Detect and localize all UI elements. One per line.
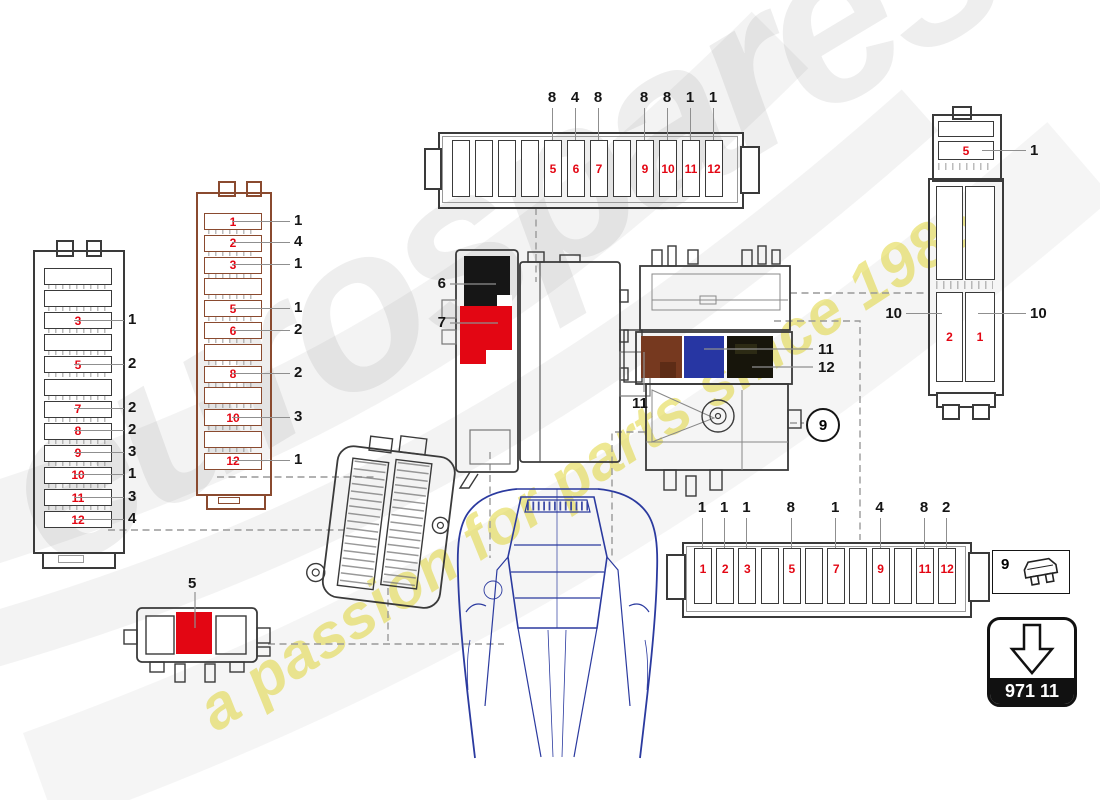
fuse-relay-parts-diagram: eurospares a passion for parts since 198… (0, 0, 1100, 800)
callout-label: 1 (294, 213, 320, 228)
circle-callout: 9 (806, 408, 840, 442)
leader-line (232, 308, 290, 309)
callout-label: 2 (128, 356, 154, 371)
callout-label: 1 (128, 312, 154, 327)
fuse-number: 6 (573, 163, 580, 175)
callout-label: 1 (713, 500, 735, 515)
end-cap (424, 148, 442, 190)
fuse-slot-7: 7 (590, 140, 608, 197)
fuse-slot-12: 12 (705, 140, 723, 197)
callout-label: 8 (633, 90, 655, 105)
fuse-slot-6 (44, 379, 112, 396)
fuse-slot-2: 2 (716, 548, 734, 604)
fuse-slot-3: 3 (44, 312, 112, 329)
leader-line (835, 518, 836, 548)
leader-line (978, 313, 1026, 314)
relay-blue (684, 336, 724, 378)
fuse-box-brown: 112431516282103121 (190, 178, 325, 513)
callout-label: 4 (294, 234, 320, 249)
leader-line (74, 320, 124, 321)
part-number-box[interactable]: 971 11 (987, 617, 1077, 707)
callout-label: 10 (1030, 306, 1047, 321)
fuse-slot-2: 2 (204, 235, 262, 252)
fuse-strip-bottom: 112131587194118122 (664, 496, 994, 626)
fuse-slot-5: 5 (783, 548, 801, 604)
fuse-slot-12: 12 (204, 453, 262, 470)
fuse-slot-3: 3 (204, 257, 262, 274)
fuse-slot: 1 (965, 292, 995, 382)
fuse-slot (936, 186, 963, 280)
fuse-slot-1 (452, 140, 470, 197)
comb-detail (208, 383, 256, 387)
fuse-number: 12 (71, 514, 84, 526)
callout-label: 1 (294, 256, 320, 271)
callout-label: 8 (656, 90, 678, 105)
callout-label: 2 (128, 400, 154, 415)
fuse-number: 7 (833, 563, 840, 575)
fuse-number: 1 (230, 216, 237, 228)
fuse-number: 9 (877, 563, 884, 575)
comb-detail (48, 506, 106, 510)
fuse-number: 5 (963, 145, 970, 157)
base-detail (58, 555, 84, 563)
comb-detail (208, 404, 256, 408)
fuse-slot (965, 186, 995, 280)
leader-line (924, 518, 925, 548)
leader-line (713, 108, 714, 140)
comb-detail (48, 484, 106, 488)
callout-label: 1 (824, 500, 846, 515)
small-relay-box (124, 592, 270, 682)
fuse-slot-9: 9 (872, 548, 890, 604)
fuse-slot-6: 6 (567, 140, 585, 197)
fuse-slot-2 (44, 290, 112, 307)
leader-line (982, 150, 1026, 151)
leader-line (644, 108, 645, 140)
end-cap (666, 554, 686, 600)
leader-line (74, 474, 124, 475)
fuse-slot-7: 7 (44, 401, 112, 418)
fuse-slot-11: 11 (682, 140, 700, 197)
fuse-slot-1 (44, 268, 112, 285)
callout-label: 2 (935, 500, 957, 515)
comb-detail (208, 230, 256, 234)
fuse-slot-10 (894, 548, 912, 604)
comb-detail (208, 339, 256, 343)
fuse-number: 7 (75, 403, 82, 415)
comb-detail (48, 351, 106, 355)
leader-line (74, 364, 124, 365)
fuse-slot-2 (475, 140, 493, 197)
leader-line (702, 518, 703, 548)
foot (972, 404, 990, 420)
leader-line (74, 497, 124, 498)
leader-line (232, 460, 290, 461)
fuse-box-left: 3152728293101113124 (28, 238, 158, 573)
fuse-number: 12 (226, 455, 239, 467)
comb-detail (48, 396, 106, 400)
leader-line (880, 518, 881, 548)
comb-detail (208, 361, 256, 365)
fuse-slot-8: 8 (204, 366, 262, 383)
callout-assembly-dark: 12 (818, 360, 835, 375)
leader-line (690, 108, 691, 140)
leader-line (906, 313, 942, 314)
fuse-number: 3 (230, 259, 237, 271)
fuse-number: 12 (707, 163, 720, 175)
control-module (304, 427, 458, 610)
callout-label: 2 (294, 365, 320, 380)
callout-label: 10 (878, 306, 902, 321)
callout-label: 8 (541, 90, 563, 105)
callout-label: 4 (128, 511, 154, 526)
comb-detail (938, 163, 992, 170)
leader-line (667, 108, 668, 140)
leader-line (232, 330, 290, 331)
leader-line (946, 518, 947, 548)
callout-label: 1 (294, 452, 320, 467)
end-cap (968, 552, 990, 602)
callout-label: 8 (587, 90, 609, 105)
carrier-relays (460, 256, 512, 364)
comb-detail (208, 295, 256, 299)
car-outline (458, 489, 657, 758)
fuse-slot-9: 9 (636, 140, 654, 197)
fuse-slot-10: 10 (204, 409, 262, 426)
fuse-slot-1: 1 (204, 213, 262, 230)
base-detail (218, 497, 240, 504)
fuse-slot-8 (849, 548, 867, 604)
fuse-number: 2 (722, 563, 729, 575)
leader-line (232, 373, 290, 374)
fuse-slot-1: 1 (694, 548, 712, 604)
leader-line (232, 221, 290, 222)
comb-detail (48, 440, 106, 444)
fuse-number: 5 (788, 563, 795, 575)
leader-line (724, 518, 725, 548)
fuse-number: 1 (700, 563, 707, 575)
comb-detail (208, 317, 256, 321)
callout-label: 3 (128, 444, 154, 459)
fuse-slot-7: 7 (827, 548, 845, 604)
leader-line (552, 108, 553, 140)
circle-callout-number: 9 (819, 417, 827, 434)
comb-detail (48, 462, 106, 466)
fuse-number: 11 (685, 163, 698, 175)
down-arrow-icon (1002, 623, 1062, 675)
fuse-number: 8 (75, 425, 82, 437)
fuse-slot-6 (805, 548, 823, 604)
fuse-number: 11 (72, 492, 85, 504)
fuse-number: 3 (75, 315, 82, 327)
callout-carrier-black: 6 (424, 276, 446, 291)
fuse-slot-4 (761, 548, 779, 604)
comb-detail (208, 426, 256, 430)
fuse-number: 3 (744, 563, 751, 575)
callout-small-relay: 5 (188, 576, 196, 591)
comb-detail (48, 307, 106, 311)
fuse-number: 5 (550, 163, 557, 175)
comb-detail (48, 418, 106, 422)
fuse-number: 12 (941, 563, 954, 575)
callout-assembly-brown: 11 (632, 396, 648, 411)
fuse-slot-5: 5 (204, 300, 262, 317)
callout-label: 1 (735, 500, 757, 515)
fuse-slot-4 (521, 140, 539, 197)
fuse-number: 1 (977, 331, 984, 343)
leader-line (232, 242, 290, 243)
fuse-slot: 2 (936, 292, 963, 382)
relay-dark (727, 336, 773, 378)
fuse-number: 5 (230, 303, 237, 315)
fuse-slot-10: 10 (44, 467, 112, 484)
leader-line (232, 417, 290, 418)
leader-line (791, 518, 792, 548)
fuse-slot-5: 5 (544, 140, 562, 197)
fuse-slot-11: 11 (44, 489, 112, 506)
fuse-strip-top: 58647898108111121 (420, 86, 770, 216)
callout-label: 1 (1030, 143, 1038, 158)
callout-label: 4 (869, 500, 891, 515)
callout-label: 1 (702, 90, 724, 105)
callout-label: 1 (679, 90, 701, 105)
fuse-number: 10 (71, 469, 84, 481)
relay-red (460, 306, 512, 364)
leader-line (575, 108, 576, 140)
fuse-slot-9 (204, 387, 262, 404)
callout-label: 1 (128, 466, 154, 481)
fuse-slot-3: 3 (738, 548, 756, 604)
fuse-slot-4 (204, 278, 262, 295)
fuse-slot-8: 8 (44, 423, 112, 440)
fuse-number: 9 (75, 447, 82, 459)
callout-label: 3 (294, 409, 320, 424)
comb-detail (48, 329, 106, 333)
comb-detail (48, 373, 106, 377)
relay-red-small (176, 612, 212, 654)
callout-label: 4 (564, 90, 586, 105)
fuse-number: 10 (661, 163, 674, 175)
fuse-slot (938, 121, 994, 137)
fuse-slot-7 (204, 344, 262, 361)
callout-label: 8 (780, 500, 802, 515)
leader-line (74, 519, 124, 520)
fuse-number: 8 (230, 368, 237, 380)
fuse-number: 9 (642, 163, 649, 175)
fuse-number: 5 (75, 359, 82, 371)
comb-detail (208, 448, 256, 452)
fuse-holder-right: 5 2 1 1 10 10 (878, 100, 1073, 430)
leader-line (74, 452, 124, 453)
fuse-number: 2 (946, 331, 953, 343)
fuse-slot-9: 9 (44, 445, 112, 462)
legend-number: 9 (1001, 556, 1009, 573)
fuse-slot-11 (204, 431, 262, 448)
comb-detail (208, 274, 256, 278)
leader-line (232, 264, 290, 265)
leader-line (74, 430, 124, 431)
fuse-number: 11 (919, 563, 932, 575)
callout-label: 1 (294, 300, 320, 315)
fuse-slot-10: 10 (659, 140, 677, 197)
callout-label: 2 (128, 422, 154, 437)
fuse-number: 7 (596, 163, 603, 175)
comb-detail (208, 252, 256, 256)
fuse-number: 6 (230, 325, 237, 337)
callout-label: 8 (913, 500, 935, 515)
fuse-slot-6: 6 (204, 322, 262, 339)
part-number: 971 11 (990, 678, 1074, 704)
fuse-slot-4 (44, 334, 112, 351)
fuse-slot-12: 12 (938, 548, 956, 604)
blade-fuse-icon (1017, 553, 1067, 591)
fuse-slot-11: 11 (916, 548, 934, 604)
comb-detail (48, 285, 106, 289)
callout-label: 2 (294, 322, 320, 337)
legend-box: 9 (992, 550, 1070, 594)
assembly-relays (641, 336, 773, 378)
callout-carrier-red: 7 (424, 315, 446, 330)
callout-label: 1 (691, 500, 713, 515)
fuse-slot-5: 5 (44, 356, 112, 373)
fuse-slot-3 (498, 140, 516, 197)
fuse-number: 10 (226, 412, 239, 424)
leader-line (746, 518, 747, 548)
end-cap (740, 146, 760, 194)
callout-label: 3 (128, 489, 154, 504)
fuse-slot-8 (613, 140, 631, 197)
leader-line (74, 408, 124, 409)
fuse-slot-12: 12 (44, 511, 112, 528)
fuse-number: 2 (230, 237, 237, 249)
leader-line (598, 108, 599, 140)
comb-detail (936, 281, 993, 289)
foot (942, 404, 960, 420)
callout-assembly-blue: 11 (818, 342, 834, 357)
